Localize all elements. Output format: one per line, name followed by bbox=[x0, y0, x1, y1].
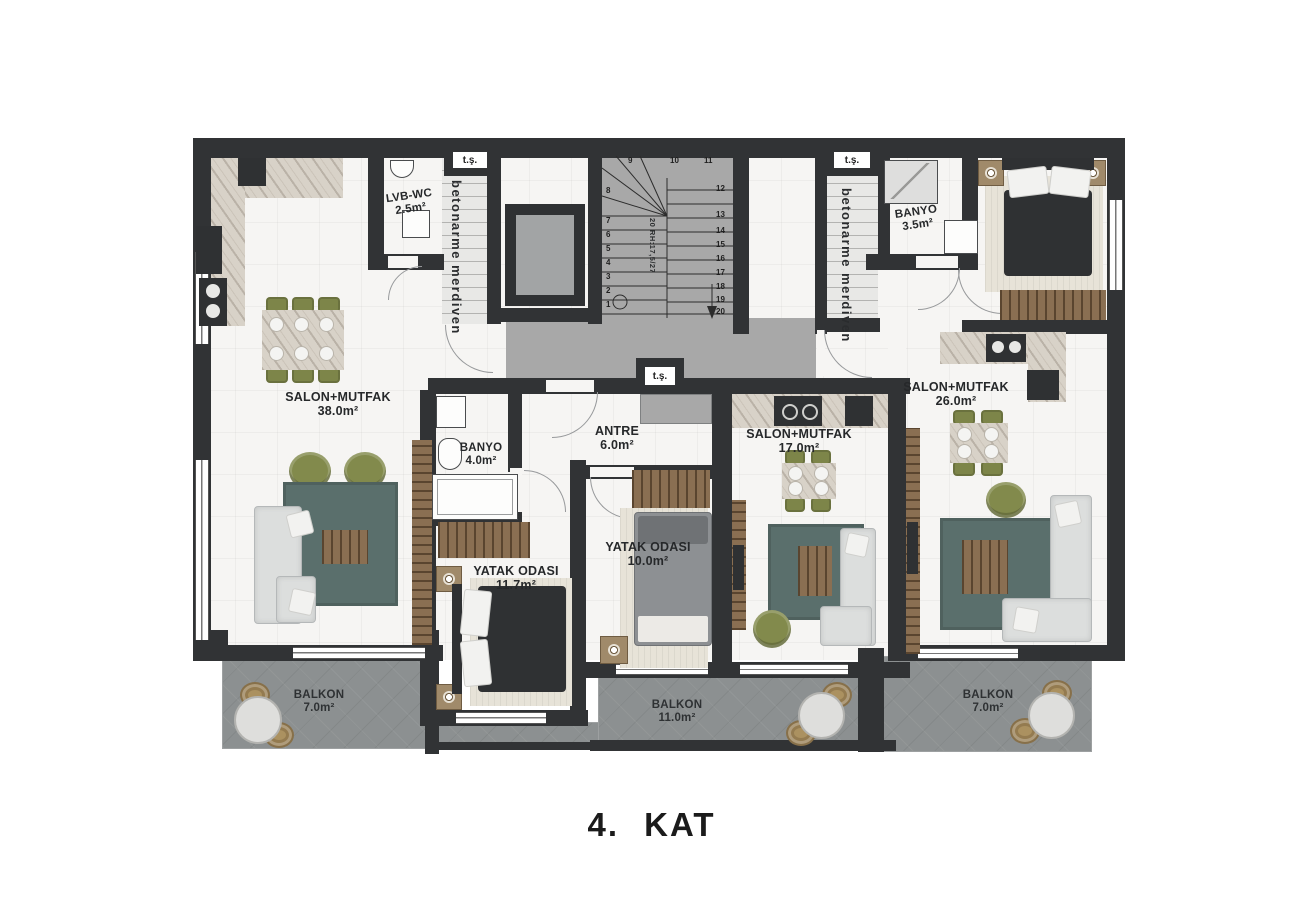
dining-chair bbox=[953, 461, 975, 476]
elevator-shaft bbox=[516, 215, 574, 295]
wardrobe-bed117 bbox=[438, 522, 530, 558]
sofa-chaise bbox=[820, 606, 872, 646]
stair-riser-note: 20 RH:17,5/27 bbox=[648, 218, 657, 273]
dining-table-6 bbox=[262, 310, 344, 370]
stair-step-number: 1 bbox=[606, 300, 610, 309]
room-area: 17.0m² bbox=[746, 441, 852, 455]
ts-label: t.ş. bbox=[845, 155, 859, 166]
sofa-pillow bbox=[1012, 606, 1040, 634]
label-salon26: SALON+MUTFAK 26.0m² bbox=[903, 380, 1009, 408]
wall-salon26-left bbox=[888, 378, 906, 652]
wall-cstair-right bbox=[733, 138, 749, 334]
stair-step-number: 17 bbox=[716, 268, 725, 277]
cooker-hood bbox=[238, 158, 266, 186]
stair-step-number: 11 bbox=[704, 156, 712, 165]
door-gap-salon26 bbox=[888, 334, 906, 378]
left-stair-label: betonarme merdiven bbox=[449, 180, 464, 335]
label-salon17: SALON+MUTFAK 17.0m² bbox=[746, 427, 852, 455]
bed-pillow bbox=[460, 589, 493, 638]
room-area: 38.0m² bbox=[285, 404, 391, 418]
ts-box-right: t.ş. bbox=[831, 149, 873, 171]
nightstand bbox=[600, 636, 628, 664]
stair-step-number: 20 bbox=[716, 307, 725, 316]
wall-elev-bottom bbox=[487, 308, 602, 322]
window-salon17 bbox=[740, 664, 848, 675]
label-balkon-left: BALKON 7.0m² bbox=[294, 689, 344, 715]
bed117-headboard bbox=[452, 584, 462, 694]
armchair bbox=[753, 610, 791, 648]
oven-17 bbox=[845, 396, 873, 426]
kitchen-sink-26 bbox=[986, 334, 1026, 362]
room-area: 7.0m² bbox=[963, 702, 1013, 715]
dining-table-4 bbox=[782, 463, 836, 499]
wardrobe-bed10 bbox=[632, 470, 710, 508]
stair-step-number: 13 bbox=[716, 210, 725, 219]
label-yatak10: YATAK ODASI 10.0m² bbox=[605, 540, 690, 568]
door-gap-bed10 bbox=[590, 467, 634, 477]
wall-bed10-salon17 bbox=[712, 392, 732, 678]
bed10-sheet bbox=[638, 616, 708, 642]
window-salon38 bbox=[293, 647, 425, 659]
window-bed117 bbox=[456, 712, 546, 724]
wall-cstair-left bbox=[588, 138, 602, 324]
balcony-table bbox=[798, 692, 845, 739]
shower bbox=[884, 160, 938, 204]
balcony-divider-right bbox=[858, 648, 884, 752]
wall-stairL-right bbox=[487, 158, 501, 324]
bed-pillow bbox=[1048, 166, 1091, 199]
room-name: YATAK ODASI bbox=[473, 564, 558, 578]
stair-step-numbers: 1234567891011121314151617181920 bbox=[602, 152, 733, 324]
shaft-box bbox=[640, 394, 712, 424]
ts-box-mid: t.ş. bbox=[642, 364, 678, 388]
bathroom-sink bbox=[944, 220, 978, 254]
wardrobe-bedroomR bbox=[1000, 290, 1106, 320]
ts-box-left: t.ş. bbox=[450, 149, 490, 171]
balcony-mid-bottom-wall2 bbox=[590, 740, 896, 751]
bathtub bbox=[432, 474, 518, 520]
stair-step-number: 2 bbox=[606, 286, 610, 295]
sofa-pillow bbox=[288, 588, 316, 616]
wall-bedrooms-divider bbox=[570, 460, 586, 712]
stair-step-number: 3 bbox=[606, 272, 610, 281]
balcony-table bbox=[1028, 692, 1075, 739]
tv-17 bbox=[733, 545, 744, 590]
window-salon26 bbox=[918, 648, 1018, 659]
stair-step-number: 8 bbox=[606, 186, 610, 195]
stair-step-number: 10 bbox=[670, 156, 679, 165]
label-balkon-mid: BALKON 11.0m² bbox=[652, 699, 702, 725]
cooktop-17 bbox=[774, 396, 822, 426]
room-area: 6.0m² bbox=[595, 438, 639, 452]
stair-step-number: 5 bbox=[606, 244, 610, 253]
label-banyo4: BANYO 4.0m² bbox=[460, 442, 503, 468]
room-area: 26.0m² bbox=[903, 394, 1009, 408]
bed-pillow bbox=[460, 639, 493, 688]
room-name: SALON+MUTFAK bbox=[285, 390, 391, 404]
door-gap-banyo35 bbox=[916, 256, 958, 268]
stair-step-number: 15 bbox=[716, 240, 725, 249]
dining-chair bbox=[811, 497, 831, 512]
door-gap-antre bbox=[546, 380, 594, 392]
sofa-pillow bbox=[1054, 500, 1082, 528]
bed-pillow bbox=[1006, 166, 1049, 199]
ts-label: t.ş. bbox=[463, 155, 477, 166]
floor-plan-canvas: t.ş. t.ş. t.ş. 1234567891011121314151617… bbox=[0, 0, 1303, 900]
coffee-table bbox=[798, 546, 832, 596]
balcony-table bbox=[234, 696, 282, 744]
armchair bbox=[986, 482, 1026, 518]
oven-26 bbox=[1027, 370, 1059, 400]
bedR-duvet bbox=[1004, 190, 1092, 276]
toilet bbox=[438, 438, 462, 470]
window-right-bedroom bbox=[1109, 200, 1123, 290]
stair-step-number: 19 bbox=[716, 295, 725, 304]
label-yatak117: YATAK ODASI 11.7m² bbox=[473, 564, 558, 592]
wall-stairR-left bbox=[815, 158, 827, 334]
balcony-mid-bottom-wall bbox=[438, 742, 600, 750]
balcony-door-26 bbox=[1040, 645, 1070, 661]
wall-banyo4-right bbox=[508, 390, 522, 472]
dining-chair bbox=[785, 497, 805, 512]
coffee-table bbox=[322, 530, 368, 564]
stair-step-number: 16 bbox=[716, 254, 725, 263]
room-name: YATAK ODASI bbox=[605, 540, 690, 554]
stair-step-number: 7 bbox=[606, 216, 610, 225]
ts-label: t.ş. bbox=[653, 371, 667, 382]
tv-26 bbox=[907, 522, 918, 574]
label-salon38: SALON+MUTFAK 38.0m² bbox=[285, 390, 391, 418]
room-name: SALON+MUTFAK bbox=[746, 427, 852, 441]
kitchen-sink-unit bbox=[199, 278, 227, 326]
label-balkon-right: BALKON 7.0m² bbox=[963, 689, 1013, 715]
stair-step-number: 4 bbox=[606, 258, 610, 267]
right-stair-label: betonarme merdiven bbox=[839, 188, 854, 343]
label-antre: ANTRE 6.0m² bbox=[595, 424, 639, 452]
stair-step-number: 9 bbox=[628, 156, 632, 165]
room-area: 11.0m² bbox=[652, 712, 702, 725]
stair-step-number: 12 bbox=[716, 184, 725, 193]
coffee-table bbox=[962, 540, 1008, 594]
window-left-2 bbox=[195, 460, 209, 640]
room-area: 7.0m² bbox=[294, 702, 344, 715]
room-area: 10.0m² bbox=[605, 554, 690, 568]
room-name: BALKON bbox=[652, 699, 702, 712]
room-name: BANYO bbox=[460, 442, 503, 455]
stair-step-number: 6 bbox=[606, 230, 610, 239]
dining-table-4 bbox=[950, 423, 1008, 463]
room-area: 4.0m² bbox=[460, 455, 503, 468]
room-name: BALKON bbox=[963, 689, 1013, 702]
bathroom-sink bbox=[436, 396, 466, 428]
sink-bowl bbox=[206, 304, 220, 318]
fridge bbox=[196, 226, 222, 274]
floor-title: 4. KAT bbox=[0, 806, 1303, 844]
sink-bowl bbox=[206, 284, 220, 298]
room-name: ANTRE bbox=[595, 424, 639, 438]
room-name: BALKON bbox=[294, 689, 344, 702]
wardrobe-salon38 bbox=[412, 440, 432, 645]
sofa-pillow bbox=[844, 532, 870, 558]
stair-step-number: 18 bbox=[716, 282, 725, 291]
stair-step-number: 14 bbox=[716, 226, 725, 235]
room-name: SALON+MUTFAK bbox=[903, 380, 1009, 394]
room-area: 11.7m² bbox=[473, 578, 558, 592]
dining-chair bbox=[981, 461, 1003, 476]
nightstand bbox=[978, 160, 1004, 186]
